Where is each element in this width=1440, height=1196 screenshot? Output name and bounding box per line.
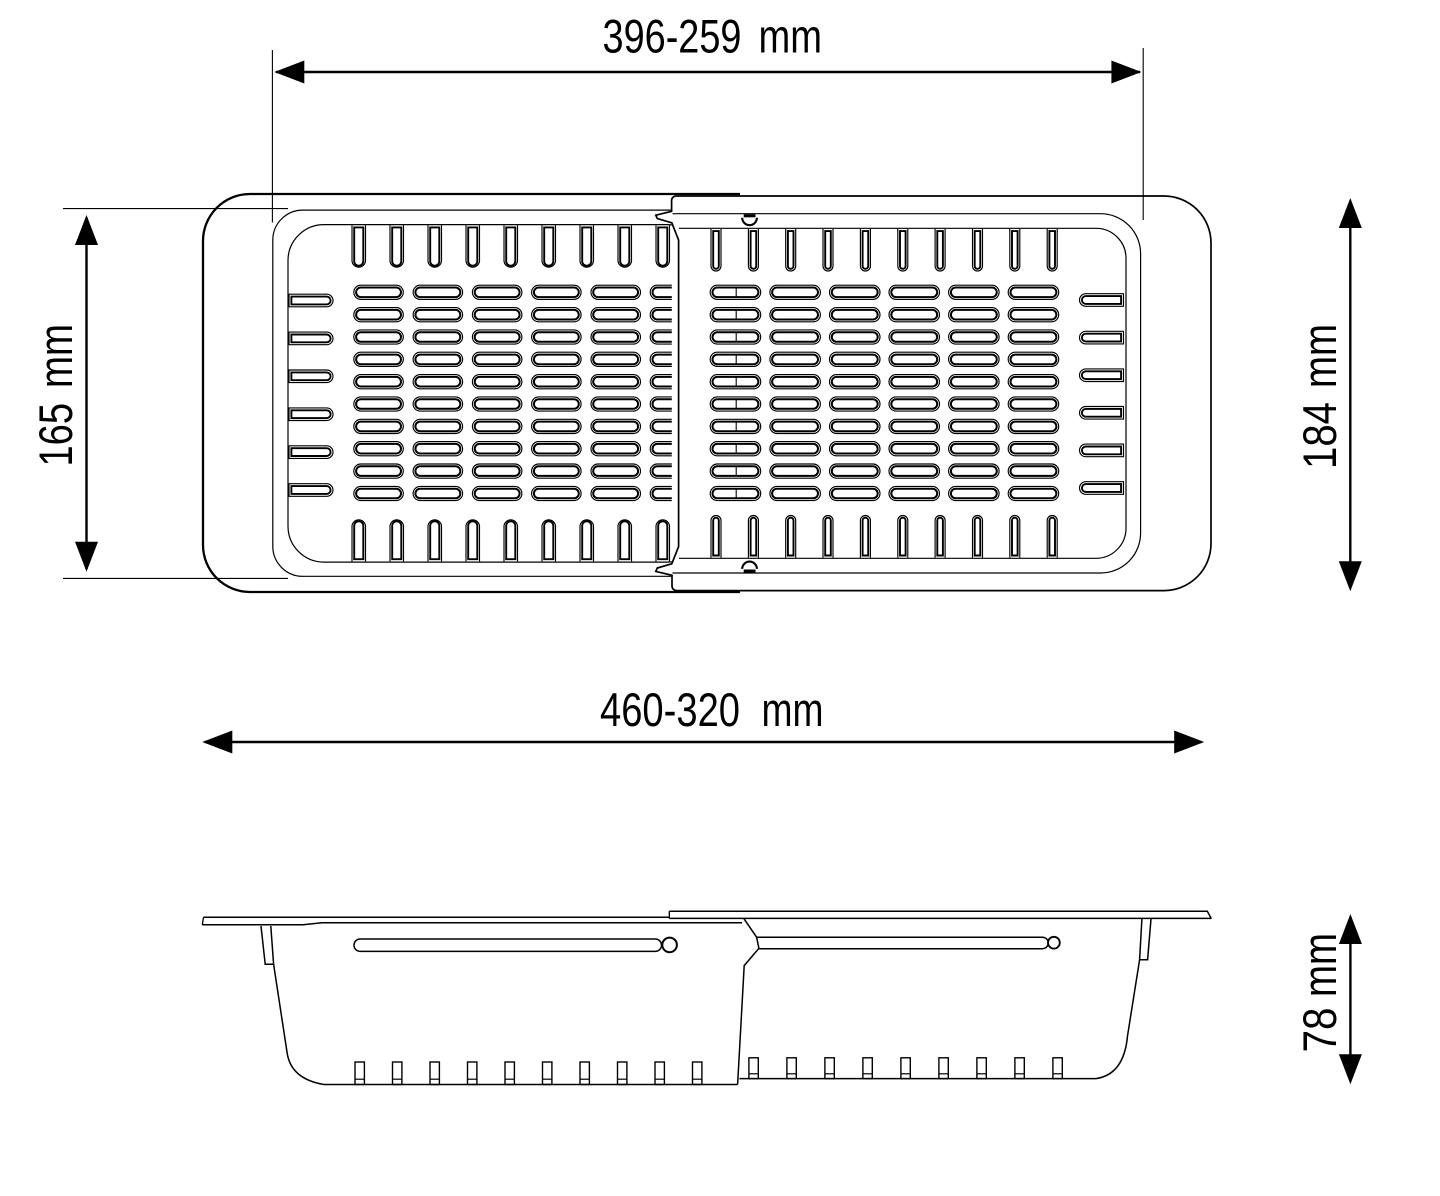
svg-text:mm: mm — [759, 11, 823, 64]
svg-text:165: 165 — [30, 403, 83, 467]
svg-text:460-320: 460-320 — [600, 684, 740, 737]
svg-text:mm: mm — [30, 324, 83, 388]
svg-text:mm: mm — [1294, 933, 1347, 997]
svg-text:396-259: 396-259 — [603, 11, 742, 64]
svg-text:184: 184 — [1294, 402, 1347, 469]
svg-text:78: 78 — [1294, 1008, 1347, 1053]
svg-text:mm: mm — [1294, 324, 1347, 388]
svg-text:mm: mm — [762, 684, 824, 737]
